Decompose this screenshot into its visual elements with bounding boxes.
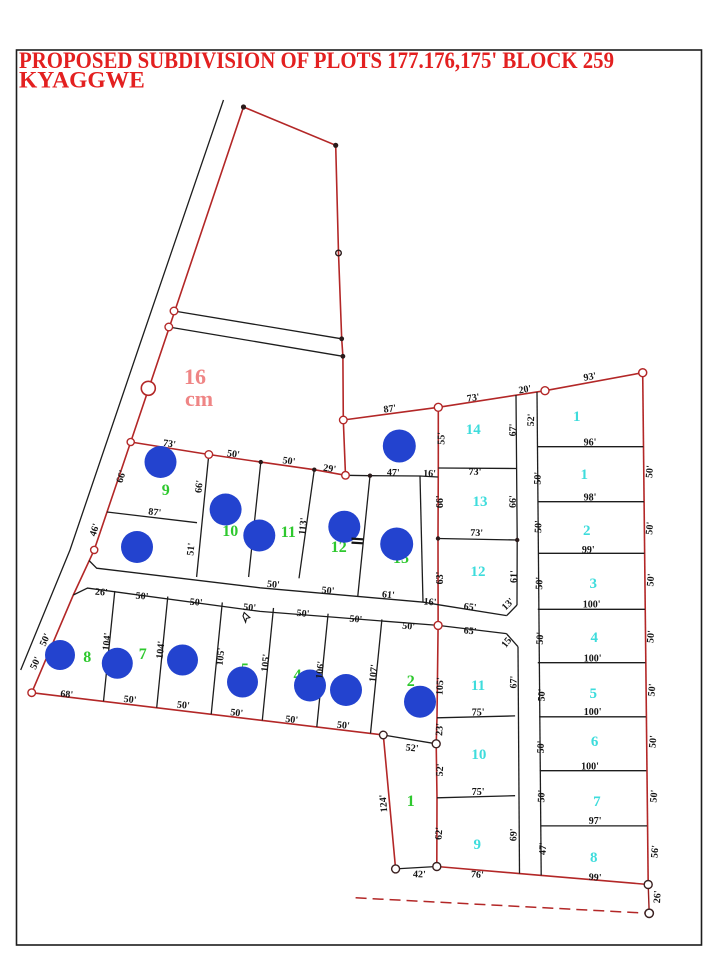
svg-text:50': 50' xyxy=(296,608,310,620)
svg-text:50': 50' xyxy=(189,597,203,609)
svg-text:66': 66' xyxy=(435,495,446,508)
svg-text:73': 73' xyxy=(466,392,481,405)
svg-text:76': 76' xyxy=(471,869,485,881)
svg-text:47': 47' xyxy=(538,842,549,855)
svg-text:113': 113' xyxy=(297,517,310,536)
svg-text:50': 50' xyxy=(135,591,149,603)
svg-text:16': 16' xyxy=(423,596,437,608)
svg-text:50': 50' xyxy=(176,700,190,712)
svg-text:50': 50' xyxy=(647,735,659,749)
svg-text:98': 98' xyxy=(584,492,597,503)
svg-text:6: 6 xyxy=(591,734,599,750)
svg-text:7: 7 xyxy=(139,646,147,663)
svg-text:5: 5 xyxy=(590,686,598,702)
svg-text:67': 67' xyxy=(508,675,519,688)
svg-text:96': 96' xyxy=(584,438,597,449)
svg-text:100': 100' xyxy=(583,600,601,611)
svg-text:11: 11 xyxy=(471,678,485,694)
svg-text:107': 107' xyxy=(368,664,381,683)
svg-text:9: 9 xyxy=(474,837,482,853)
svg-text:73': 73' xyxy=(162,438,177,451)
svg-text:100': 100' xyxy=(581,761,599,772)
svg-text:104': 104' xyxy=(155,640,168,659)
svg-text:50': 50' xyxy=(336,720,350,732)
svg-text:50': 50' xyxy=(644,465,656,479)
svg-text:2: 2 xyxy=(583,523,591,539)
svg-text:62': 62' xyxy=(434,827,446,841)
svg-text:3: 3 xyxy=(590,576,598,592)
svg-text:50': 50' xyxy=(535,632,546,645)
svg-text:20': 20' xyxy=(518,384,533,397)
svg-text:42': 42' xyxy=(413,869,426,880)
svg-text:50': 50' xyxy=(282,455,296,468)
svg-text:55': 55' xyxy=(437,432,448,445)
svg-text:7: 7 xyxy=(593,794,601,810)
svg-text:100': 100' xyxy=(584,707,602,718)
svg-text:87': 87' xyxy=(148,506,162,519)
svg-text:50': 50' xyxy=(349,614,363,626)
svg-text:9: 9 xyxy=(162,482,170,499)
svg-text:1: 1 xyxy=(407,793,415,810)
svg-text:69': 69' xyxy=(508,828,519,841)
svg-text:50': 50' xyxy=(534,577,545,590)
svg-text:50': 50' xyxy=(536,688,547,701)
svg-text:50': 50' xyxy=(243,602,257,614)
svg-text:50': 50' xyxy=(645,630,657,644)
svg-text:68': 68' xyxy=(60,689,74,701)
svg-text:106': 106' xyxy=(314,660,327,679)
svg-text:50': 50' xyxy=(536,789,547,802)
svg-text:50': 50' xyxy=(645,573,657,587)
svg-text:50': 50' xyxy=(402,621,416,633)
svg-text:93': 93' xyxy=(583,371,598,384)
svg-text:50': 50' xyxy=(648,789,660,803)
svg-text:67': 67' xyxy=(508,423,519,436)
svg-text:87': 87' xyxy=(383,403,397,416)
svg-text:66': 66' xyxy=(193,479,205,493)
svg-text:63': 63' xyxy=(435,571,446,584)
svg-text:50': 50' xyxy=(226,448,240,461)
svg-text:104': 104' xyxy=(101,632,114,651)
svg-text:13: 13 xyxy=(473,494,488,510)
svg-text:97': 97' xyxy=(589,816,602,827)
svg-text:65': 65' xyxy=(463,601,477,614)
svg-text:26': 26' xyxy=(652,890,664,904)
svg-text:50': 50' xyxy=(533,520,544,533)
svg-text:1: 1 xyxy=(573,409,581,425)
svg-text:73': 73' xyxy=(470,528,483,539)
svg-text:75': 75' xyxy=(472,708,485,719)
svg-text:52': 52' xyxy=(526,413,537,426)
svg-text:99': 99' xyxy=(582,545,595,556)
svg-text:65': 65' xyxy=(463,625,477,638)
svg-text:4: 4 xyxy=(591,630,599,646)
svg-text:99': 99' xyxy=(588,872,602,884)
svg-text:50': 50' xyxy=(123,694,137,706)
svg-text:100': 100' xyxy=(584,653,602,664)
svg-text:50': 50' xyxy=(321,585,335,597)
svg-text:52': 52' xyxy=(405,742,419,754)
svg-text:10: 10 xyxy=(222,523,238,540)
svg-text:10: 10 xyxy=(471,747,486,763)
svg-text:50': 50' xyxy=(646,683,658,697)
svg-text:50': 50' xyxy=(266,579,280,591)
svg-text:29': 29' xyxy=(323,463,337,476)
svg-text:16': 16' xyxy=(423,468,436,479)
svg-text:14: 14 xyxy=(466,422,482,438)
svg-text:47': 47' xyxy=(387,467,400,478)
svg-text:124': 124' xyxy=(378,794,391,813)
svg-text:23': 23' xyxy=(434,723,446,737)
svg-text:8: 8 xyxy=(590,850,598,866)
svg-text:50': 50' xyxy=(230,707,244,719)
svg-text:105': 105' xyxy=(215,647,228,666)
svg-text:12: 12 xyxy=(471,564,486,580)
svg-text:61': 61' xyxy=(381,589,395,601)
svg-text:cm: cm xyxy=(185,386,213,411)
svg-text:50': 50' xyxy=(644,521,656,535)
svg-text:56': 56' xyxy=(649,845,661,859)
svg-text:KYAGGWE: KYAGGWE xyxy=(19,67,145,93)
svg-text:73': 73' xyxy=(468,467,481,478)
svg-text:8: 8 xyxy=(83,649,91,666)
svg-text:1: 1 xyxy=(581,467,589,483)
svg-text:75': 75' xyxy=(472,787,485,798)
svg-text:50': 50' xyxy=(532,472,543,485)
svg-text:50': 50' xyxy=(536,740,547,753)
svg-text:66': 66' xyxy=(508,495,519,508)
svg-text:105': 105' xyxy=(260,653,273,672)
svg-text:50': 50' xyxy=(285,714,299,726)
svg-text:105': 105' xyxy=(435,677,447,696)
svg-text:51': 51' xyxy=(185,542,197,556)
svg-text:61': 61' xyxy=(509,570,520,583)
svg-text:11: 11 xyxy=(281,524,296,541)
svg-text:52': 52' xyxy=(435,763,447,777)
svg-text:26': 26' xyxy=(94,587,108,599)
